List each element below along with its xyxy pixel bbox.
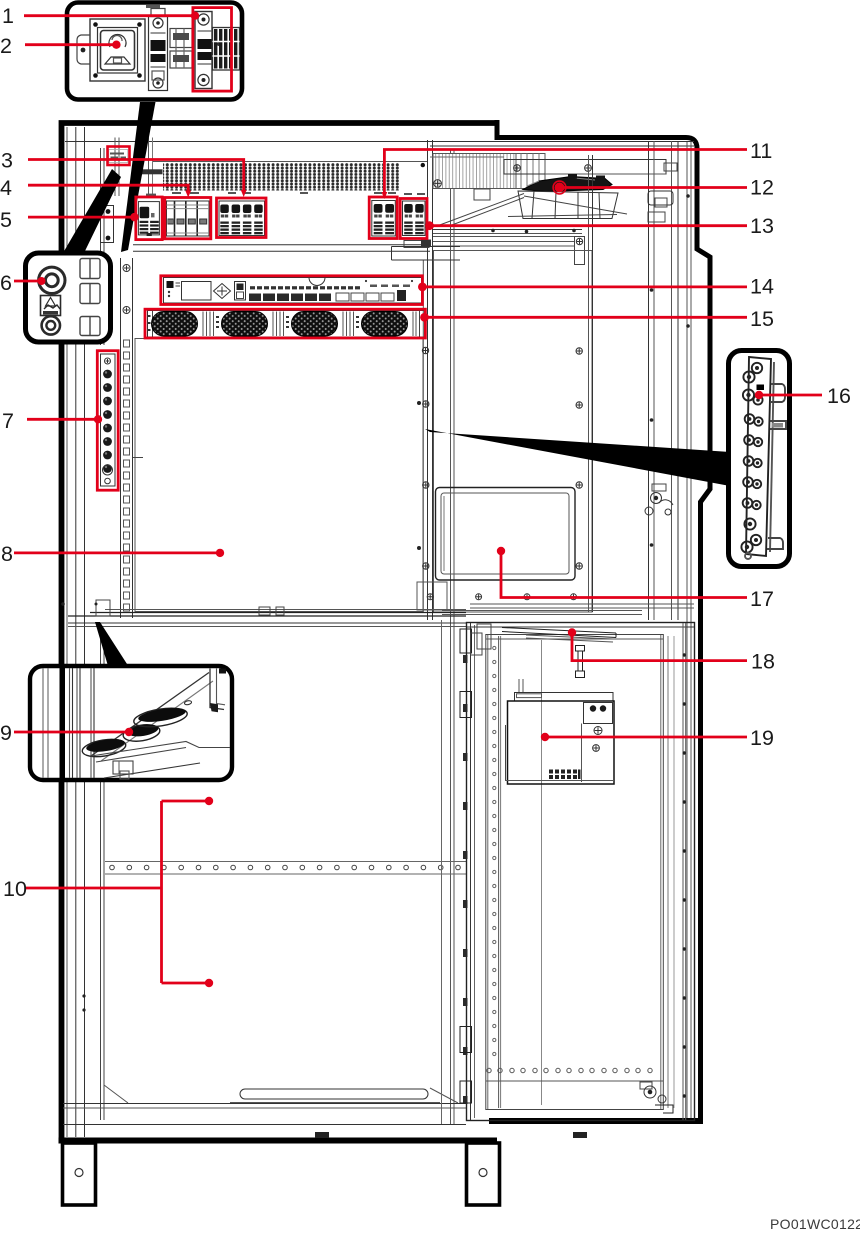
svg-text:13: 13 — [750, 214, 774, 238]
svg-text:2: 2 — [0, 34, 12, 58]
svg-text:12: 12 — [750, 176, 774, 200]
svg-text:19: 19 — [750, 726, 774, 750]
svg-text:18: 18 — [751, 650, 775, 674]
svg-text:8: 8 — [1, 542, 13, 566]
svg-text:10: 10 — [3, 877, 27, 901]
svg-text:15: 15 — [750, 307, 774, 331]
svg-text:PO01WC0122: PO01WC0122 — [770, 1216, 860, 1232]
svg-text:9: 9 — [0, 721, 12, 745]
svg-text:11: 11 — [750, 139, 772, 163]
svg-text:1: 1 — [2, 4, 14, 28]
svg-text:4: 4 — [0, 176, 12, 200]
svg-text:5: 5 — [0, 208, 12, 232]
svg-text:6: 6 — [0, 271, 12, 295]
svg-text:7: 7 — [2, 409, 14, 433]
svg-text:16: 16 — [827, 384, 851, 408]
svg-text:17: 17 — [750, 587, 774, 611]
svg-text:14: 14 — [750, 274, 774, 298]
svg-text:3: 3 — [1, 149, 13, 173]
